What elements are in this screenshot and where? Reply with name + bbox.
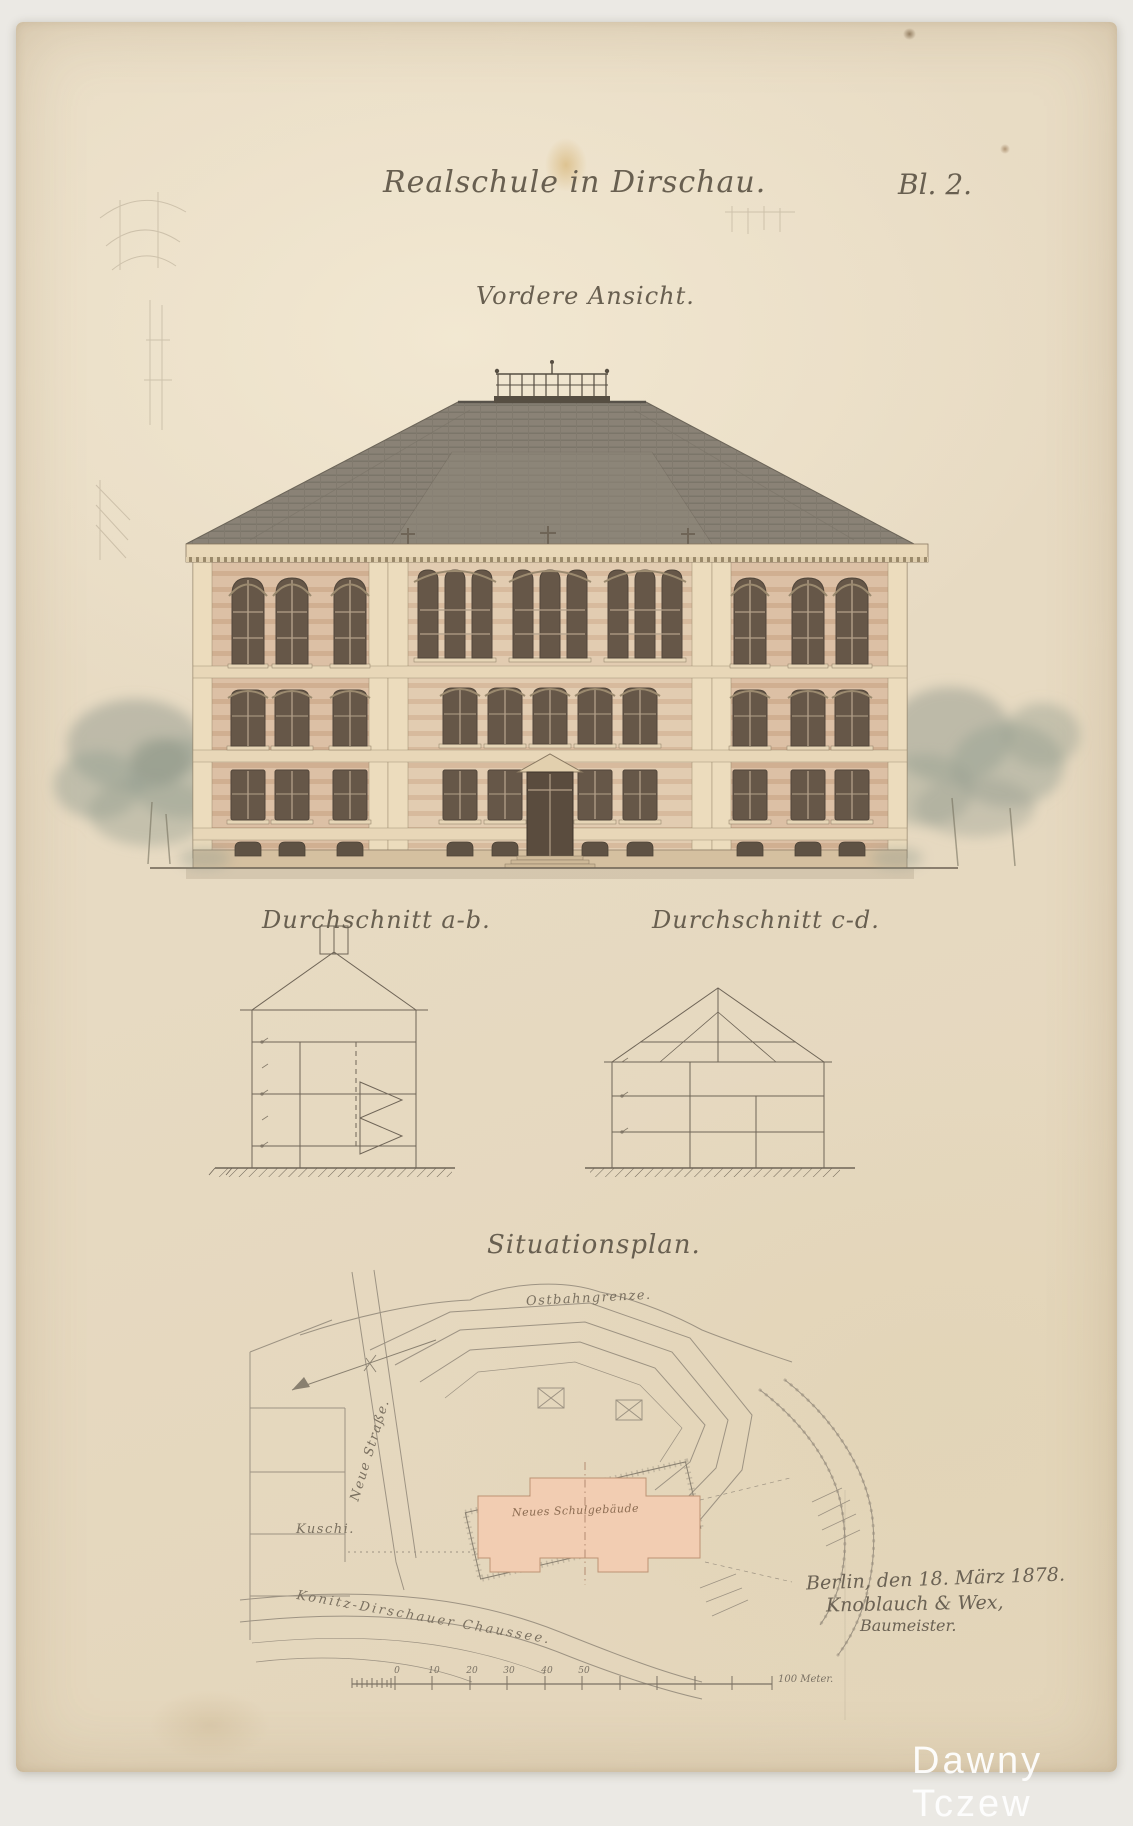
north-arrow-icon: [292, 1340, 436, 1390]
signature-role: Baumeister.: [860, 1616, 956, 1635]
chaussee-lines: [240, 1594, 702, 1699]
new-school-footprint: [478, 1478, 700, 1572]
sheet-number: Bl. 2.: [898, 168, 972, 201]
scale-tick-label: 30: [503, 1666, 515, 1676]
front-elevation-drawing: [54, 360, 1080, 879]
scale-tick-label: 20: [465, 1666, 478, 1676]
watermark-text: Dawny Tczew: [912, 1740, 1133, 1826]
plot-owner-label: Kuschi.: [296, 1522, 355, 1537]
scale-tick-label: 50: [578, 1666, 590, 1676]
section-cd-drawing: [585, 988, 855, 1177]
siteplan-title: Situationsplan.: [487, 1230, 701, 1260]
scale-end-label: 100 Meter.: [778, 1674, 833, 1685]
sheet-title: Realschule in Dirschau.: [383, 165, 766, 200]
school-footprint: [465, 1462, 701, 1585]
scale-tick-label: 40: [540, 1666, 553, 1676]
roof-railing: [494, 360, 610, 403]
dimension-ticks: [261, 1038, 268, 1147]
roof: [186, 402, 914, 544]
scale-tick-label: 10: [428, 1666, 440, 1676]
scale-bar: 0 10 20 30 40 50 100 Meter.: [352, 1666, 833, 1690]
signature-architects: Knoblauch & Wex,: [826, 1591, 1004, 1616]
tree-right: [877, 687, 1080, 866]
section-ab-title: Durchschnitt a-b.: [262, 906, 491, 934]
section-cd-title: Durchschnitt c-d.: [652, 906, 880, 934]
scanned-drawing-sheet: { "document": { "title": "Realschule in …: [0, 0, 1133, 1800]
elevation-title: Vordere Ansicht.: [476, 282, 695, 310]
bastion-platforms: [538, 1388, 642, 1420]
scale-tick-label: 0: [394, 1666, 400, 1676]
siteplan-drawing: [240, 1270, 874, 1720]
section-ab-drawing: [209, 926, 455, 1177]
drawing-artwork: 0 10 20 30 40 50 100 Meter.: [0, 0, 1133, 1800]
